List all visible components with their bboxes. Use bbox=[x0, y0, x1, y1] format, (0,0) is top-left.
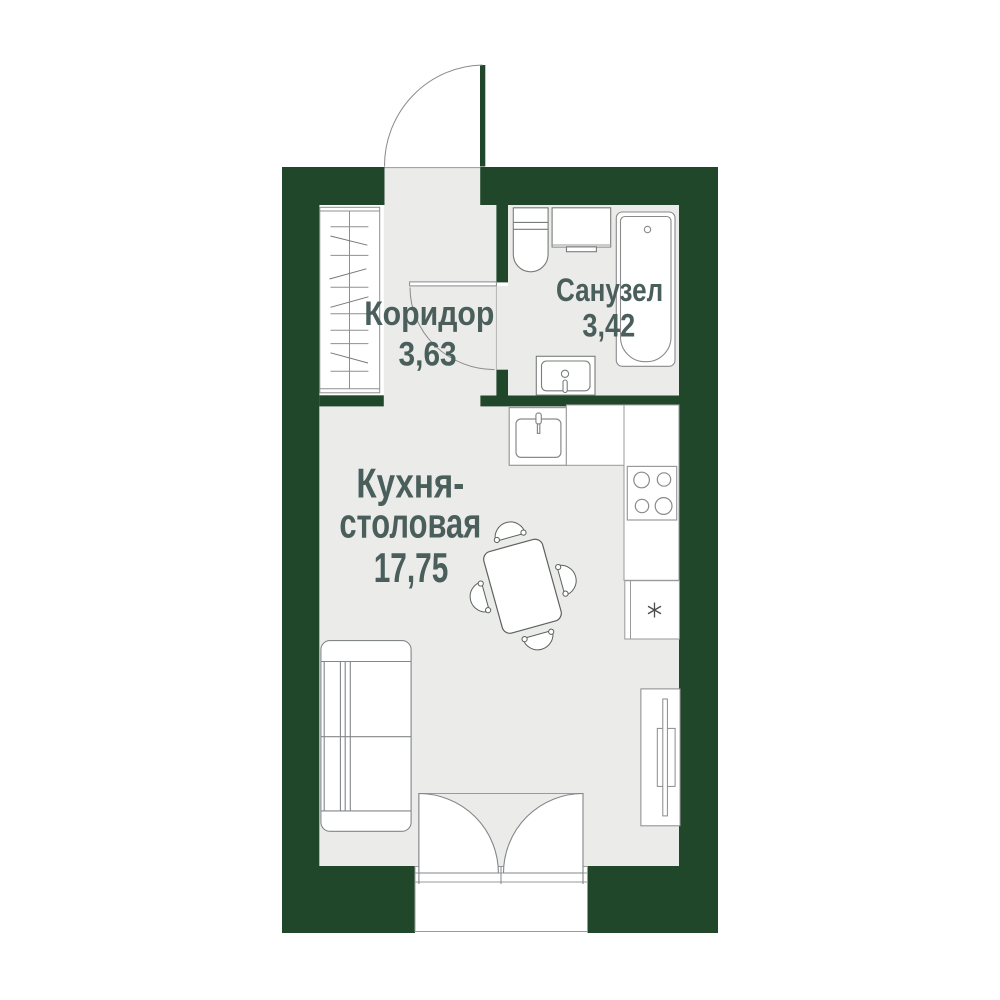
svg-text:3,42: 3,42 bbox=[582, 306, 635, 343]
svg-text:столовая: столовая bbox=[339, 501, 481, 547]
svg-text:Коридор: Коридор bbox=[364, 295, 494, 333]
svg-text:3,63: 3,63 bbox=[399, 336, 457, 374]
svg-text:17,75: 17,75 bbox=[374, 545, 449, 591]
svg-text:Санузел: Санузел bbox=[556, 271, 663, 308]
